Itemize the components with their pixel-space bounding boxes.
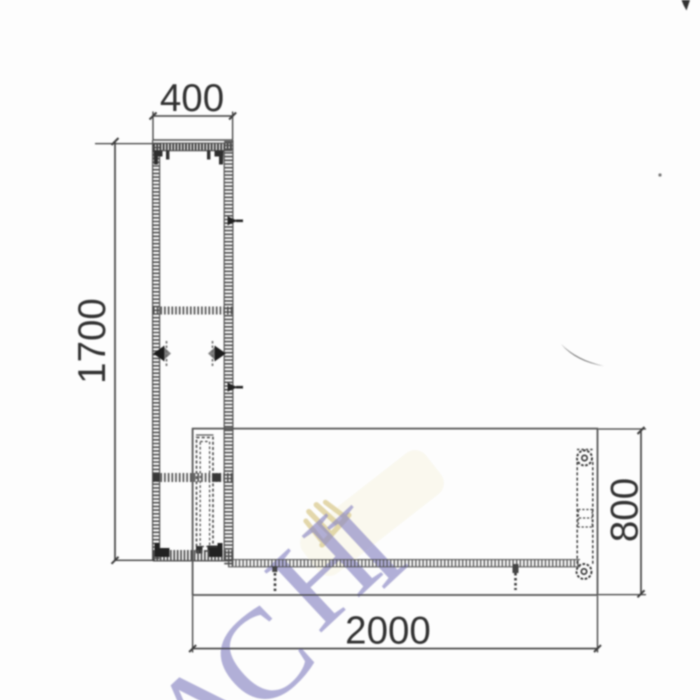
svg-text:1700: 1700 bbox=[71, 298, 114, 384]
svg-text:800: 800 bbox=[604, 478, 647, 542]
svg-text:400: 400 bbox=[160, 77, 224, 120]
svg-text:2000: 2000 bbox=[345, 610, 431, 653]
